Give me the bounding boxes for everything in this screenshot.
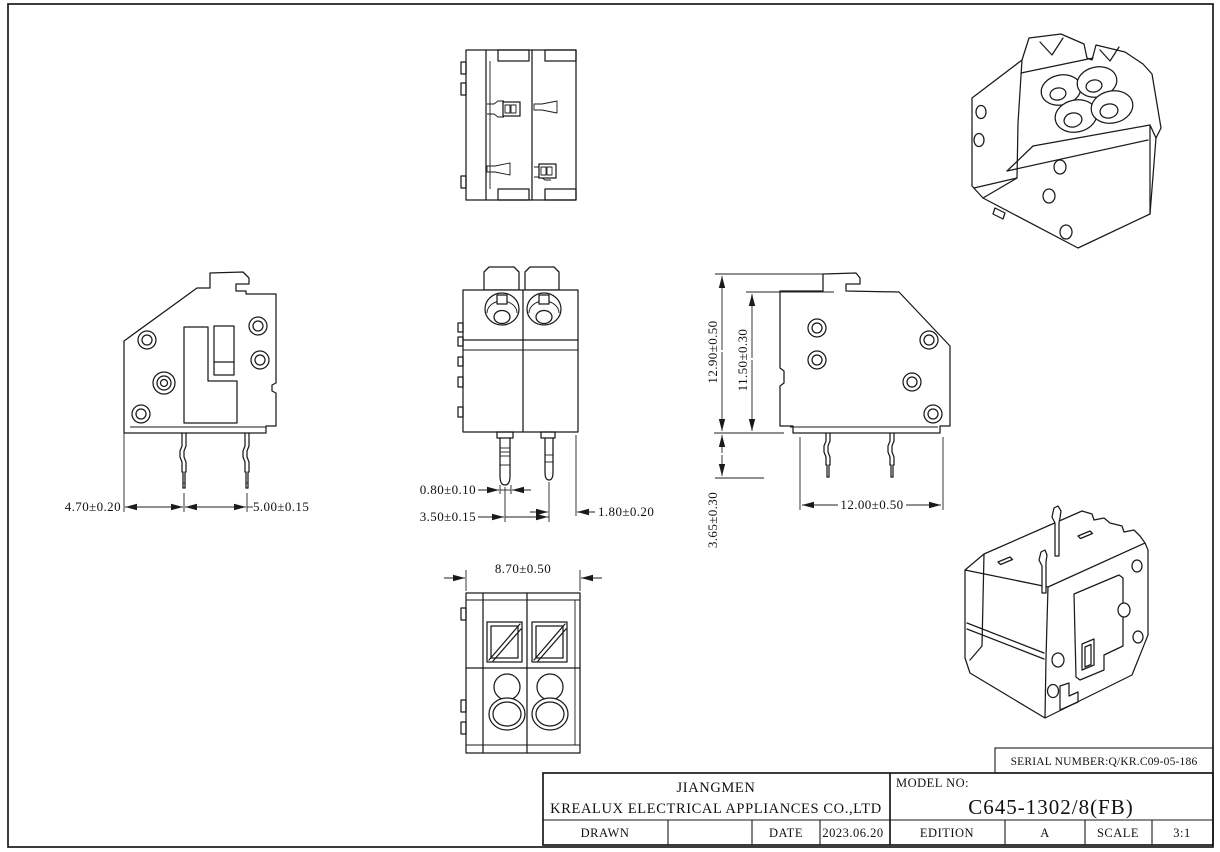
edition-value: A xyxy=(1040,826,1050,840)
wire-hole-keyhole xyxy=(489,674,525,730)
date-value: 2023.06.20 xyxy=(822,826,883,840)
dim-0-80: 0.80±0.10 xyxy=(420,482,476,497)
view-bottom xyxy=(461,593,580,753)
serial-number: SERIAL NUMBER:Q/KR.C09-05-186 xyxy=(1011,756,1198,768)
pin xyxy=(545,438,553,480)
model-no-value: C645-1302/8(FB) xyxy=(968,795,1134,819)
view-iso-front xyxy=(972,34,1161,248)
dim-12-90: 12.90±0.50 xyxy=(705,320,720,383)
model-no-label: MODEL NO: xyxy=(896,776,969,790)
scale-label: SCALE xyxy=(1097,826,1139,840)
view-side-left xyxy=(124,272,276,488)
pin xyxy=(243,433,249,488)
view-top xyxy=(461,50,576,200)
drawing-sheet: 4.70±0.20 5.00±0.15 0.80±0.10 3.50±0.15 … xyxy=(0,0,1220,852)
view-side-right xyxy=(780,273,950,477)
dim-12-00: 12.00±0.50 xyxy=(840,497,903,512)
company-city: JIANGMEN xyxy=(677,780,756,796)
dim-3-50: 3.50±0.15 xyxy=(420,509,476,524)
dim-11-50: 11.50±0.30 xyxy=(735,329,750,392)
drawn-label: DRAWN xyxy=(581,826,630,840)
dim-8-70: 8.70±0.50 xyxy=(495,561,551,576)
date-label: DATE xyxy=(769,826,803,840)
wire-hole-keyhole xyxy=(532,674,568,730)
title-block: SERIAL NUMBER:Q/KR.C09-05-186 JIANGMEN K… xyxy=(543,748,1213,845)
pin xyxy=(824,433,830,477)
edition-label: EDITION xyxy=(920,826,974,840)
dim-1-80: 1.80±0.20 xyxy=(598,504,654,519)
pin xyxy=(888,433,894,477)
company-name: KREALUX ELECTRICAL APPLIANCES CO.,LTD xyxy=(550,801,882,817)
pin xyxy=(180,433,186,488)
dim-4-70: 4.70±0.20 xyxy=(65,499,121,514)
dim-5-00: 5.00±0.15 xyxy=(253,499,309,514)
scale-value: 3:1 xyxy=(1173,826,1190,840)
pin xyxy=(500,438,510,485)
drawing-canvas: 4.70±0.20 5.00±0.15 0.80±0.10 3.50±0.15 … xyxy=(0,0,1220,852)
dim-3-65: 3.65±0.30 xyxy=(705,492,720,548)
view-front xyxy=(458,267,578,485)
view-iso-back xyxy=(965,506,1148,718)
